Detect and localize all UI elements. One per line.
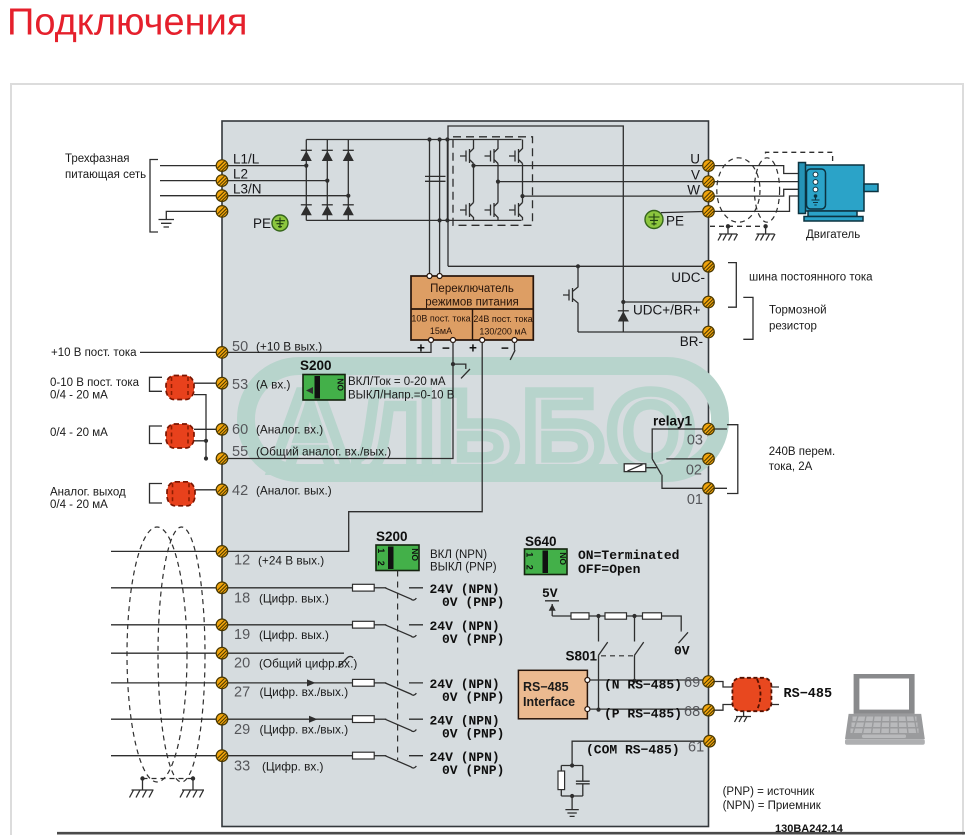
svg-text:(Цифр. вых.): (Цифр. вых.)	[259, 628, 329, 642]
svg-text:55: 55	[232, 444, 248, 460]
svg-text:24В пост. тока: 24В пост. тока	[473, 314, 532, 324]
svg-text:15мА: 15мА	[430, 326, 452, 336]
svg-text:L3/N: L3/N	[233, 182, 262, 197]
svg-text:Interface: Interface	[523, 695, 575, 709]
svg-text:10В пост. тока: 10В пост. тока	[411, 314, 470, 324]
svg-text:L2: L2	[233, 167, 248, 182]
svg-text:ВЫКЛ (PNP): ВЫКЛ (PNP)	[430, 562, 497, 574]
svg-text:ON=Terminated: ON=Terminated	[578, 548, 679, 563]
svg-text:50: 50	[232, 339, 248, 355]
svg-text:OFF=Open: OFF=Open	[578, 562, 641, 577]
svg-text:(Аналог. вых.): (Аналог. вых.)	[256, 484, 332, 498]
svg-text:W: W	[687, 183, 700, 198]
svg-text:шина постоянного тока: шина постоянного тока	[749, 272, 873, 284]
svg-text:Аналог. выход: Аналог. выход	[50, 487, 126, 499]
svg-text:53: 53	[232, 377, 248, 393]
svg-text:+10 В пост. тока: +10 В пост. тока	[51, 347, 137, 359]
svg-text:0/4 - 20 мА: 0/4 - 20 мА	[50, 390, 108, 402]
svg-text:29: 29	[234, 722, 250, 738]
svg-text:ВКЛ (NPN): ВКЛ (NPN)	[430, 549, 487, 561]
svg-text:03: 03	[687, 433, 703, 449]
svg-text:(NPN) = Приемник: (NPN) = Приемник	[723, 800, 822, 812]
svg-text:02: 02	[686, 463, 702, 479]
svg-text:L1/L: L1/L	[233, 152, 260, 167]
svg-text:68: 68	[684, 704, 700, 720]
svg-text:(А вх.): (А вх.)	[256, 378, 291, 392]
svg-text:(PNP) = источник: (PNP) = источник	[723, 786, 816, 798]
svg-text:UDC-: UDC-	[671, 270, 705, 285]
svg-text:S200: S200	[300, 358, 332, 373]
svg-text:1: 1	[525, 552, 535, 557]
svg-text:(+24 В вых.): (+24 В вых.)	[258, 553, 324, 567]
svg-text:1: 1	[376, 548, 386, 553]
svg-text:+: +	[417, 341, 425, 356]
svg-text:−: −	[501, 341, 509, 356]
svg-text:0V (PNP): 0V (PNP)	[442, 727, 504, 742]
svg-text:Трехфазная: Трехфазная	[65, 153, 130, 165]
svg-text:−: −	[442, 341, 450, 356]
svg-text:S640: S640	[525, 534, 557, 549]
svg-text:0V (PNP): 0V (PNP)	[442, 763, 504, 778]
svg-text:резистор: резистор	[769, 320, 817, 332]
svg-text:(N RS−485): (N RS−485)	[604, 678, 682, 693]
svg-text:69: 69	[684, 675, 700, 691]
svg-text:BR-: BR-	[680, 334, 703, 349]
svg-text:0V (PNP): 0V (PNP)	[442, 632, 504, 647]
svg-text:ВЫКЛ/Напр.=0-10 В: ВЫКЛ/Напр.=0-10 В	[348, 390, 455, 402]
svg-text:(P RS−485): (P RS−485)	[604, 706, 682, 721]
svg-text:27: 27	[234, 684, 250, 700]
svg-text:(Общий цифр.вх.): (Общий цифр.вх.)	[259, 656, 357, 670]
svg-text:(Цифр. вх./вых.): (Цифр. вх./вых.)	[260, 685, 349, 699]
svg-text:Двигатель: Двигатель	[806, 229, 860, 241]
svg-text:Подключения: Подключения	[7, 2, 247, 44]
svg-text:20: 20	[234, 656, 250, 672]
svg-text:режимов питания: режимов питания	[425, 297, 519, 309]
svg-text:ON: ON	[410, 548, 420, 561]
svg-text:U: U	[690, 152, 700, 167]
svg-text:ON: ON	[336, 378, 346, 391]
svg-text:0V: 0V	[674, 644, 690, 659]
svg-text:Переключатель: Переключатель	[430, 283, 514, 295]
svg-text:01: 01	[687, 492, 703, 508]
svg-text:33: 33	[234, 759, 250, 775]
svg-text:питающая сеть: питающая сеть	[65, 169, 146, 181]
svg-text:S801: S801	[566, 649, 598, 664]
svg-text:S200: S200	[376, 529, 408, 544]
svg-text:0/4 - 20 мА: 0/4 - 20 мА	[50, 427, 108, 439]
svg-text:0V (PNP): 0V (PNP)	[442, 595, 504, 610]
svg-text:(COM RS−485): (COM RS−485)	[586, 742, 680, 757]
svg-text:relay1: relay1	[653, 414, 693, 429]
svg-text:(Аналог. вх.): (Аналог. вх.)	[256, 423, 323, 437]
svg-text:130/200 мА: 130/200 мА	[479, 327, 526, 337]
svg-text:240В перем.: 240В перем.	[769, 446, 836, 458]
svg-text:(Цифр. вых.): (Цифр. вых.)	[259, 591, 329, 605]
svg-text:Тормозной: Тормозной	[769, 305, 827, 317]
svg-text:12: 12	[234, 552, 250, 568]
svg-text:(Цифр. вх./вых.): (Цифр. вх./вых.)	[260, 723, 349, 737]
svg-text:PE: PE	[666, 214, 684, 229]
svg-text:61: 61	[688, 740, 704, 756]
svg-text:18: 18	[234, 591, 250, 607]
svg-text:0-10 В пост. тока: 0-10 В пост. тока	[50, 377, 140, 389]
svg-text:PE: PE	[253, 216, 271, 231]
svg-text:2: 2	[376, 561, 386, 566]
svg-text:RS−485: RS−485	[784, 687, 833, 702]
svg-text:2: 2	[525, 565, 535, 570]
svg-text:UDC+/BR+: UDC+/BR+	[633, 303, 701, 318]
svg-text:(+10 В вых.): (+10 В вых.)	[256, 340, 322, 354]
svg-text:ВКЛ/Ток = 0-20 мА: ВКЛ/Ток = 0-20 мА	[348, 376, 446, 388]
svg-text:RS−485: RS−485	[523, 680, 569, 694]
svg-text:0/4 - 20 мА: 0/4 - 20 мА	[50, 499, 108, 511]
svg-text:ON: ON	[558, 552, 568, 565]
svg-text:60: 60	[232, 422, 248, 438]
svg-text:+: +	[469, 341, 477, 356]
svg-text:(Цифр. вх.): (Цифр. вх.)	[262, 759, 324, 773]
svg-text:тока, 2А: тока, 2А	[769, 461, 813, 473]
svg-text:V: V	[691, 168, 700, 183]
svg-text:(Общий аналог. вх./вых.): (Общий аналог. вх./вых.)	[256, 445, 391, 459]
svg-text:19: 19	[234, 627, 250, 643]
svg-text:0V (PNP): 0V (PNP)	[442, 690, 504, 705]
svg-text:42: 42	[232, 483, 248, 499]
svg-text:5V: 5V	[542, 586, 558, 601]
